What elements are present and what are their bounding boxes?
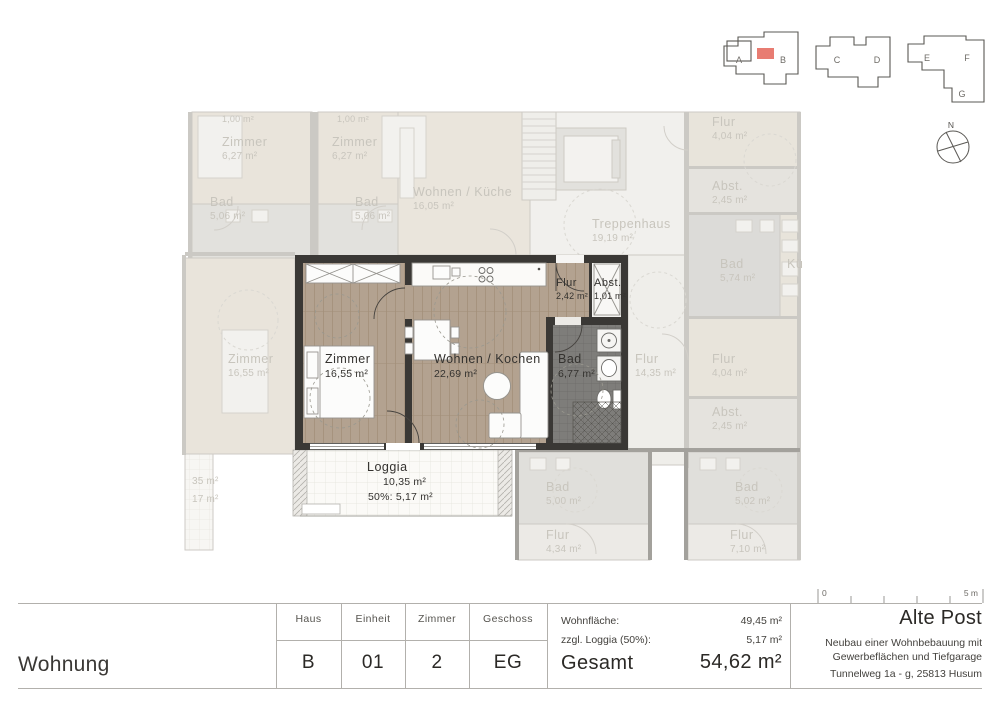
room-label-zimmer: Zimmer 16,55 m²	[325, 351, 370, 382]
context-room-label: Bad5,06 m²	[355, 194, 390, 223]
context-room-label: Zimmer6,27 m²	[332, 134, 377, 163]
total-area-label: Gesamt	[561, 652, 633, 675]
building-overview-icon: A B C D E F G	[724, 32, 984, 102]
context-room-label: Abst.2,45 m²	[712, 404, 747, 433]
context-room-label: 35 m²	[192, 475, 219, 488]
context-room-label: Flur4,34 m²	[546, 527, 581, 556]
loggia-area-label: zzgl. Loggia (50%):	[561, 634, 651, 646]
project-description-line2: Gewerbeflächen und Tiefgarage	[833, 650, 982, 665]
unit-highlight-marker	[757, 48, 774, 59]
column-header-zimmer: Zimmer	[405, 613, 469, 625]
context-room-label: Flur4,04 m²	[712, 351, 747, 380]
context-room-label: Bad5,06 m²	[210, 194, 245, 223]
room-label-bad: Bad 6,77 m²	[558, 351, 595, 382]
titleblock-top-rule	[18, 603, 982, 604]
titleblock-divider	[790, 603, 791, 688]
context-room-label: Bad5,02 m²	[735, 479, 770, 508]
building-label-a: A	[736, 55, 742, 65]
context-room-label: Wohnen / Küche16,05 m²	[413, 184, 512, 213]
context-room-label: 1,00 m²	[337, 114, 369, 126]
context-room-label: Kü	[787, 256, 803, 272]
context-room-label: Flur14,35 m²	[635, 351, 676, 380]
building-label-g: G	[958, 89, 965, 99]
loggia-area-value: 5,17 m²	[746, 634, 782, 646]
building-label-d: D	[874, 55, 881, 65]
context-room-label: Bad5,74 m²	[720, 256, 755, 285]
context-room-label: Abst.2,45 m²	[712, 178, 747, 207]
room-label-abstellraum: Abst. 1,01 m²	[594, 276, 626, 303]
building-label-c: C	[834, 55, 841, 65]
column-value-zimmer: 2	[405, 652, 469, 674]
column-header-geschoss: Geschoss	[469, 613, 547, 625]
column-value-einheit: 01	[341, 652, 405, 674]
project-address: Tunnelweg 1a - g, 25813 Husum	[830, 667, 982, 682]
context-room-label: Treppenhaus19,19 m²	[592, 216, 671, 245]
column-header-haus: Haus	[276, 613, 341, 625]
scale-max-label: 5 m	[964, 588, 978, 598]
context-room-label: 1,00 m²	[222, 114, 254, 126]
column-value-haus: B	[276, 652, 341, 674]
titleblock-header-rule	[276, 640, 547, 641]
living-area-label: Wohnfläche:	[561, 615, 619, 627]
context-room-label: Bad5,00 m²	[546, 479, 581, 508]
column-value-geschoss: EG	[469, 652, 547, 674]
north-label: N	[948, 120, 954, 130]
north-arrow-icon: N	[937, 120, 969, 163]
titleblock-bottom-rule	[18, 688, 982, 689]
floor-plan-sheet: A B C D E F G N 0 5 m 1,00 m² Zimmer6,27…	[0, 0, 1000, 707]
room-label-flur: Flur 2,42 m²	[556, 276, 588, 303]
column-header-einheit: Einheit	[341, 613, 405, 625]
building-label-f: F	[964, 53, 970, 63]
scale-bar: 0 5 m	[818, 588, 983, 603]
project-description-line1: Neubau einer Wohnbebauung mit	[825, 636, 982, 651]
room-label-loggia: Loggia 10,35 m² 50%: 5,17 m²	[367, 459, 433, 505]
building-label-b: B	[780, 55, 786, 65]
project-name: Alte Post	[899, 607, 982, 630]
context-room-label: 17 m²	[192, 493, 219, 506]
living-area-value: 49,45 m²	[741, 615, 782, 627]
sheet-title: Wohnung	[18, 653, 110, 677]
titleblock-divider	[547, 603, 548, 688]
context-room-label: Zimmer16,55 m²	[228, 351, 273, 380]
total-area-value: 54,62 m²	[700, 651, 782, 674]
building-label-e: E	[924, 53, 930, 63]
context-room-label: Zimmer6,27 m²	[222, 134, 267, 163]
context-room-label: Flur7,10 m²	[730, 527, 765, 556]
scale-zero-label: 0	[822, 588, 827, 598]
room-label-wohnen-kochen: Wohnen / Kochen 22,69 m²	[434, 351, 541, 382]
context-room-label: Flur4,04 m²	[712, 114, 747, 143]
